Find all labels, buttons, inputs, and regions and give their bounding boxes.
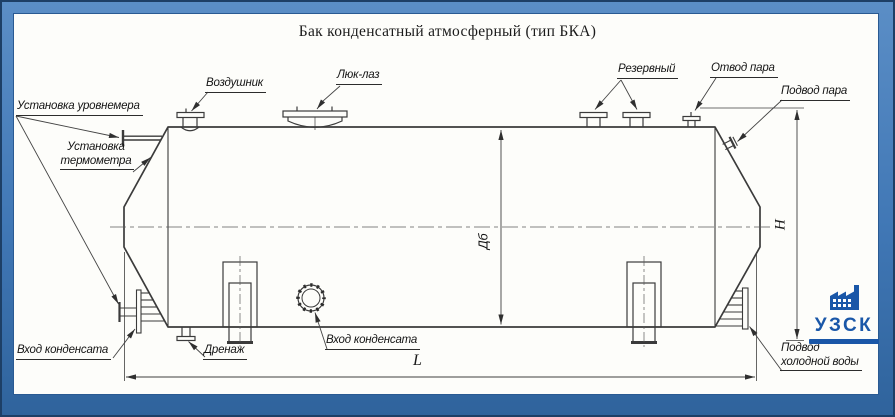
support-right bbox=[627, 256, 661, 347]
drawing-title: Бак конденсатный атмосферный (тип БКА) bbox=[0, 23, 895, 41]
logo-text: УЗСК bbox=[806, 316, 882, 337]
label-steam-outlet: Отвод пара bbox=[710, 62, 778, 78]
label-condensate-inlet-left: Вход конденсата bbox=[16, 344, 111, 360]
logo-tagline-bar bbox=[809, 339, 879, 344]
drain-nozzle bbox=[177, 327, 195, 341]
label-cold-water: Подвод холодной воды bbox=[780, 342, 862, 371]
label-steam-inlet: Подвод пара bbox=[780, 85, 850, 101]
factory-icon bbox=[826, 285, 862, 311]
drawing-sheet: Бак конденсатный атмосферный (тип БКА) У… bbox=[0, 0, 895, 417]
label-condensate-inlet-shell: Вход конденсата bbox=[325, 334, 420, 350]
label-reserve: Резервный bbox=[617, 63, 678, 79]
label-manhole: Люк-лаз bbox=[336, 69, 382, 85]
label-thermometer: Установка термометра bbox=[55, 141, 139, 170]
condensate-inlet-nozzle bbox=[120, 290, 165, 333]
cold-water-nozzle bbox=[716, 288, 748, 329]
steam-inlet-nozzle bbox=[721, 136, 738, 153]
support-left bbox=[223, 256, 257, 347]
uzsk-logo: УЗСК bbox=[806, 285, 882, 344]
reserve-nozzle-2 bbox=[623, 113, 650, 128]
dimension-L bbox=[125, 252, 757, 381]
shell-flange bbox=[298, 285, 324, 311]
reserve-nozzle-1 bbox=[580, 113, 607, 128]
label-level-gauge: Установка уровнемера bbox=[16, 100, 143, 116]
dimension-label-Db: Дб bbox=[476, 234, 491, 249]
label-drain: Дренаж bbox=[203, 344, 247, 360]
dimension-label-L: L bbox=[413, 352, 422, 371]
steam-outlet-nozzle bbox=[683, 112, 700, 127]
dimension-label-H: H bbox=[772, 220, 790, 231]
label-air-vent: Воздушник bbox=[205, 77, 266, 93]
